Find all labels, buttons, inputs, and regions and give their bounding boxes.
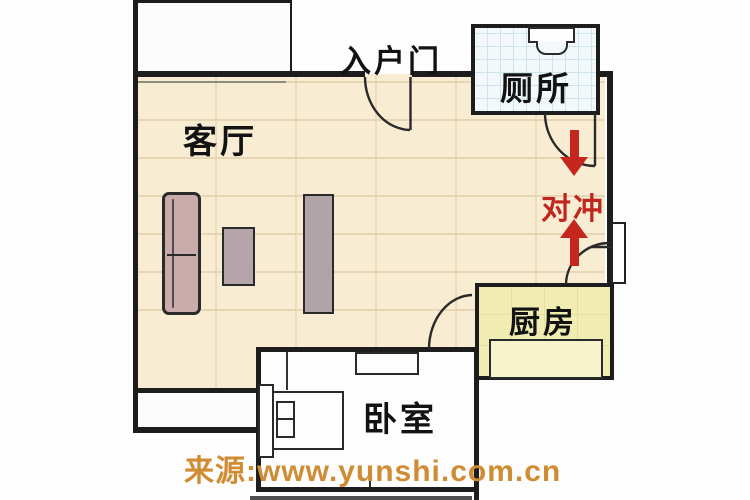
entrance-label: 入户门 [340,36,442,81]
clash-arrow-up-head [560,219,588,238]
kitchen-counter [489,339,603,379]
living-room-floor-left-strip [137,347,258,391]
sofa [162,192,201,315]
watermark-text: 来源:www.yunshi.com.cn [184,446,561,490]
sofa-cushion-line [167,254,196,256]
bedroom-label: 卧室 [363,392,437,441]
lower-balcony [138,393,256,427]
bedroom-divider-line [286,352,288,390]
toilet-label: 厕所 [500,62,572,110]
toilet-bowl [536,41,568,55]
bottom-exterior-wall [250,496,472,500]
stairwell-box [138,0,292,74]
living-room-label: 客厅 [183,114,257,163]
bed-pillow-bottom [276,418,295,438]
tv-cabinet [303,194,334,314]
kitchen-label: 厨房 [509,297,577,342]
coffee-table [222,227,255,286]
clash-arrow-down-head [560,157,588,176]
clash-arrow-down-shaft [570,130,579,158]
window [611,222,626,284]
wall-top-left-segment [135,71,365,77]
clash-arrow-up-shaft [570,238,579,266]
wall-balcony-bottom [135,427,256,433]
wall-inner-edge-line [138,81,286,83]
bedroom-wardrobe [355,352,419,375]
floorplan-canvas: 厕所 厨房 卧室 客厅 入户门 对冲 [0,0,750,500]
